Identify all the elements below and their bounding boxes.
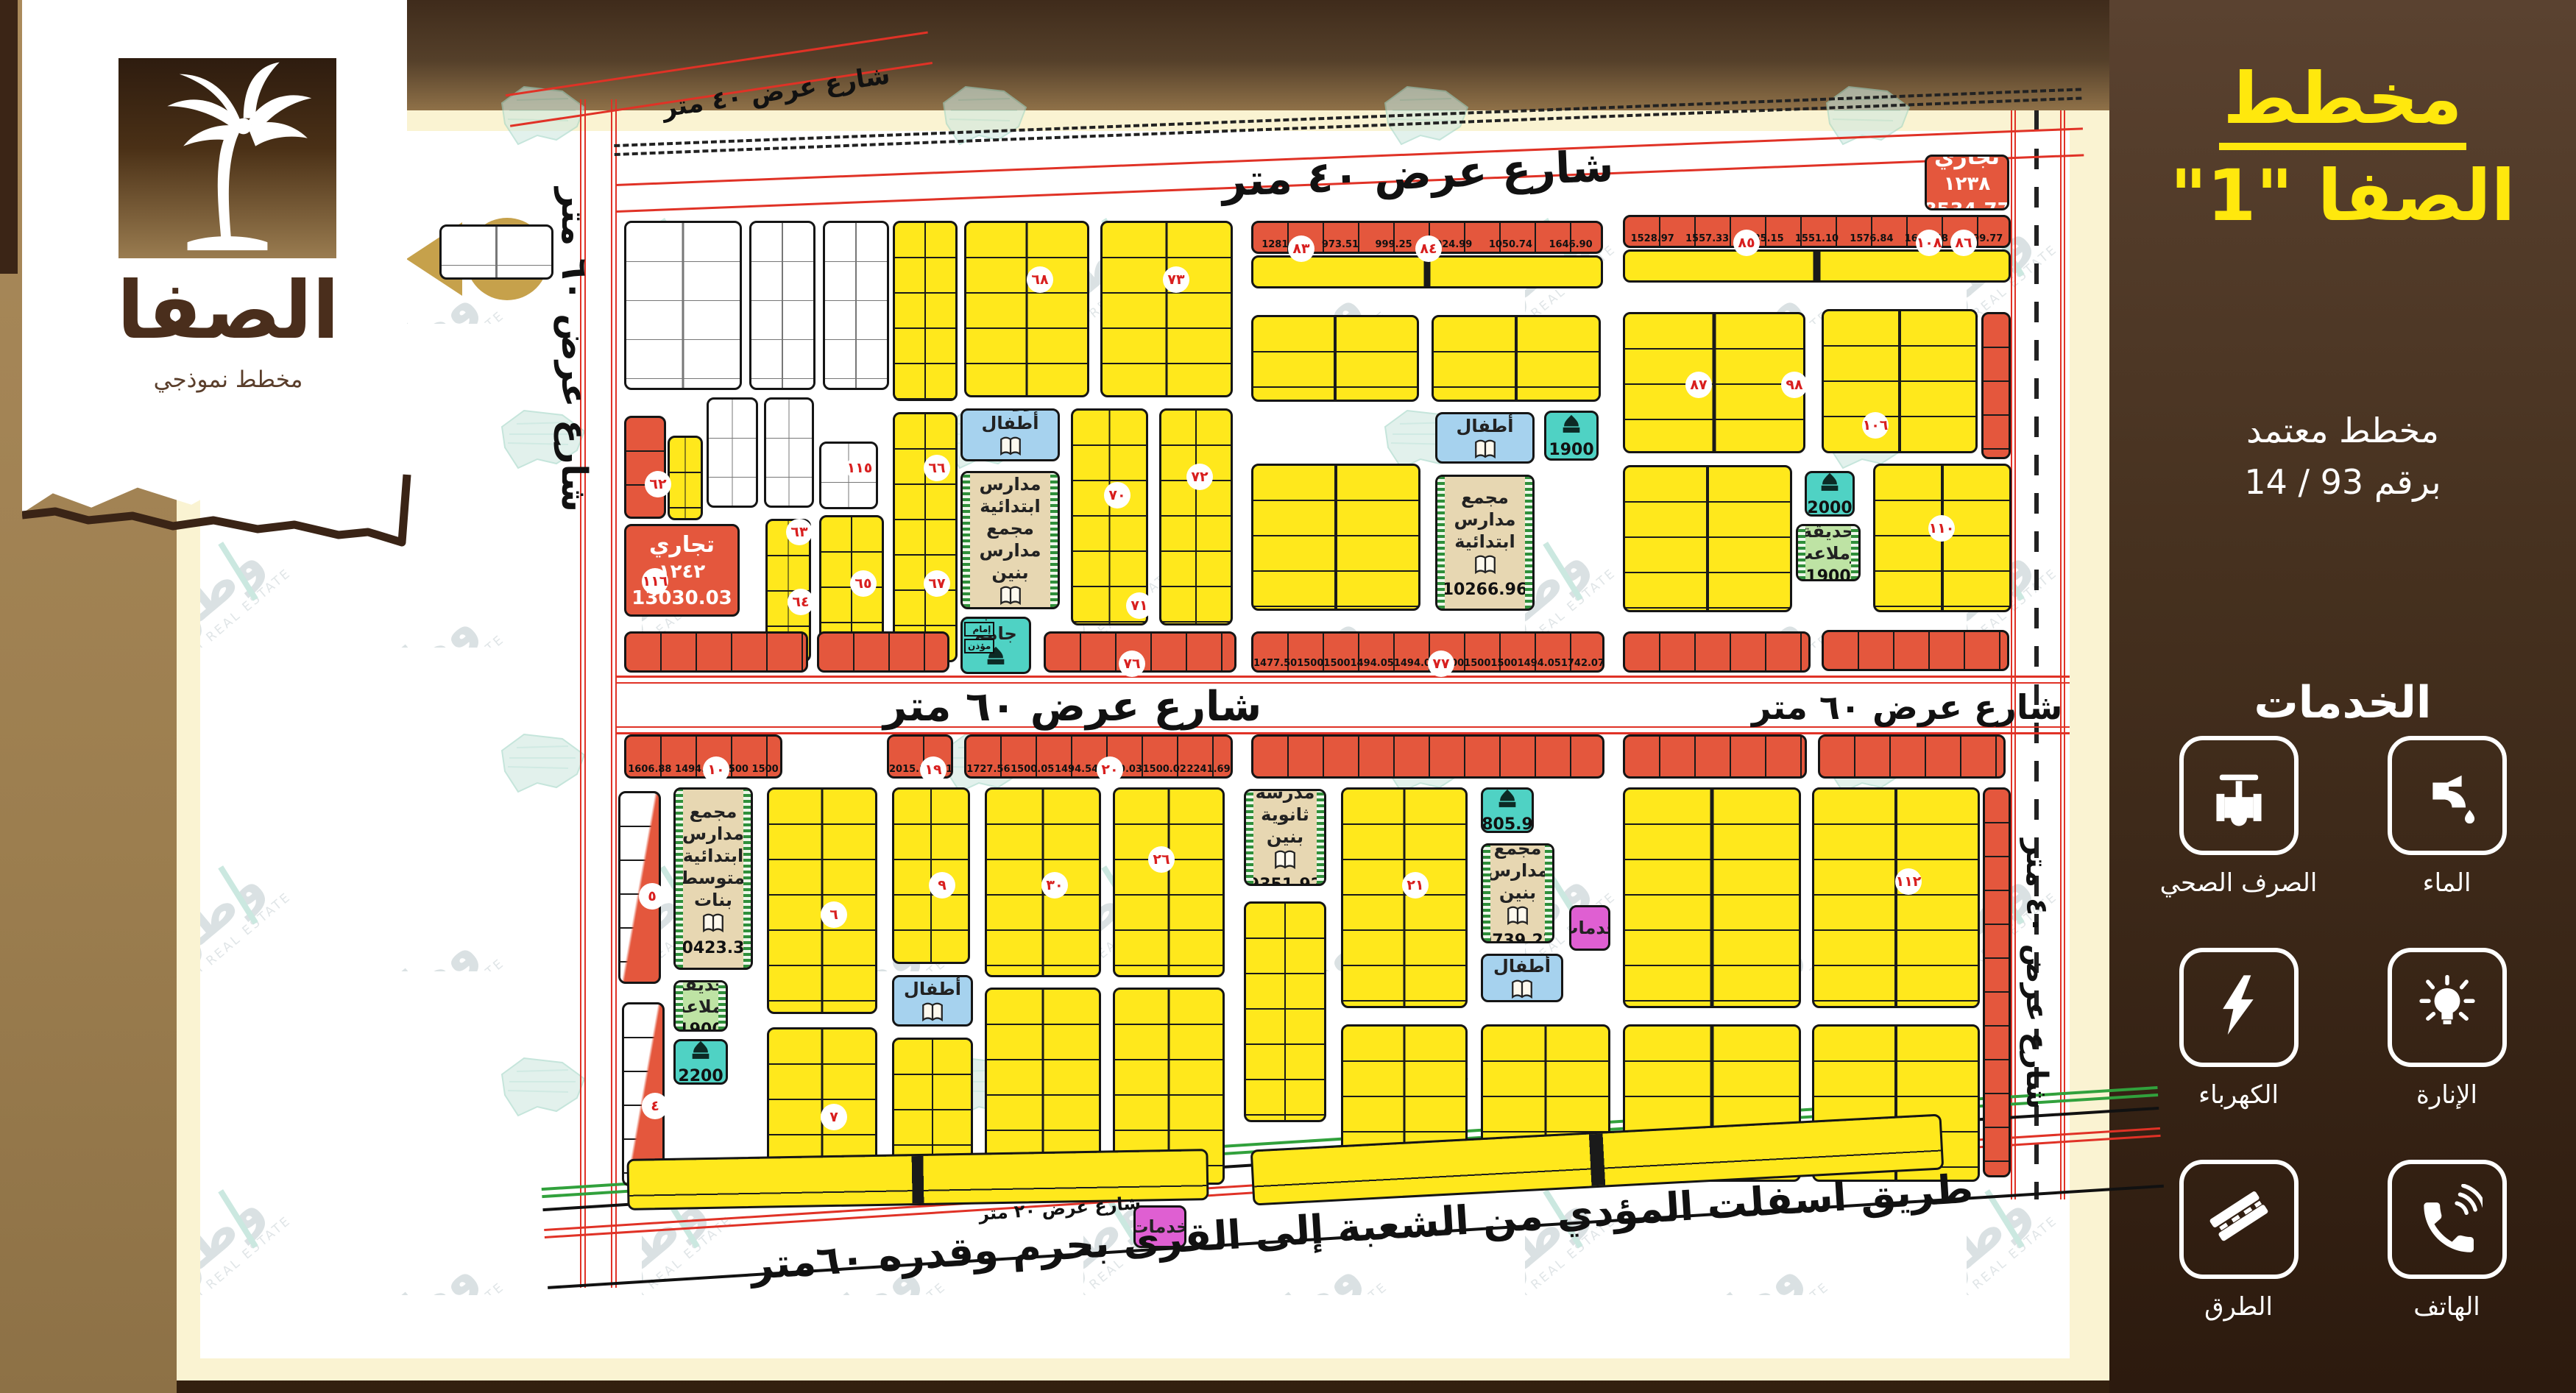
services-plot: خدمات bbox=[1569, 905, 1610, 951]
service-label: الطرق bbox=[2204, 1292, 2273, 1322]
school-plot: مجمع مدارسابتدائيةومتوسطة بنات10423.36 bbox=[673, 787, 753, 970]
green-hatch bbox=[1851, 526, 1858, 579]
plot-area: 9351.92 bbox=[1248, 876, 1322, 887]
service-label: الهاتف bbox=[2413, 1292, 2480, 1322]
plot-block bbox=[624, 221, 742, 390]
block-number-badge: ٦٦ bbox=[924, 455, 950, 481]
block-number-badge: ٧٧ bbox=[1428, 651, 1454, 677]
plot-block bbox=[1623, 734, 1807, 779]
road-icon bbox=[2204, 1184, 2274, 1255]
block-number-badge: ٦ bbox=[821, 901, 847, 928]
street-label: شارع عرض ٦٠ متر bbox=[1752, 687, 2062, 727]
block-number-badge: ١١٢ bbox=[1895, 868, 1922, 895]
book-icon bbox=[1505, 904, 1530, 929]
plot-area: 1900 bbox=[678, 1021, 723, 1032]
mosque-plot: 1900 bbox=[1544, 411, 1599, 461]
mosque-plot: 1805.94 bbox=[1481, 787, 1534, 833]
mosque-plot: مسجد جامع5830.01إماممؤذن bbox=[960, 617, 1031, 674]
plot-block bbox=[1251, 734, 1604, 779]
block-number-badge: ٨٤ bbox=[1415, 235, 1442, 262]
service-label: الإنارة bbox=[2416, 1080, 2477, 1110]
green-hatch bbox=[1545, 846, 1552, 941]
block-number-badge: ٧٣ bbox=[1163, 266, 1189, 293]
commercial-plot: تجاري١٢٣٨8534.77 bbox=[1925, 155, 2009, 210]
plan-title-line2: الصفا "1" bbox=[2127, 155, 2558, 237]
block-number-badge: ٣٠ bbox=[1041, 872, 1068, 898]
plot-area: 10266.96 bbox=[1443, 581, 1528, 599]
block-number-badge: ٧٠ bbox=[1104, 482, 1130, 508]
school-plot: مجمع مدارسبنين9739.27 bbox=[1481, 843, 1554, 943]
book-icon bbox=[1510, 977, 1535, 1002]
palm-logo bbox=[118, 58, 336, 258]
plot-block bbox=[1623, 465, 1792, 612]
commercial-plot: تجاري١٢٤٢13030.03 bbox=[624, 524, 740, 617]
plot-block bbox=[964, 221, 1089, 397]
plot-block bbox=[1981, 312, 2011, 459]
block-number-badge: ٧ bbox=[821, 1104, 847, 1130]
plot-area: 8534.77 bbox=[1925, 199, 2009, 210]
plot-block bbox=[1822, 630, 2009, 671]
mosque-icon bbox=[1495, 787, 1520, 812]
mosque-icon bbox=[688, 1039, 713, 1064]
plot-label: روضة أطفال bbox=[1483, 954, 1561, 977]
service-tile bbox=[2179, 1160, 2299, 1279]
green-hatch bbox=[1437, 477, 1445, 609]
plot-label: روضة أطفال bbox=[1437, 412, 1532, 437]
plot-area: 1900 bbox=[1805, 567, 1850, 582]
plot-block bbox=[1623, 631, 1811, 673]
plot-label: روضة أطفال bbox=[894, 975, 971, 1000]
green-hatch bbox=[743, 790, 751, 968]
services-grid: الماءالصرف الصحيالإنارةالكهرباءالهاتفالط… bbox=[2156, 736, 2529, 1322]
green-hatch bbox=[1798, 526, 1805, 579]
service-item: الإنارة bbox=[2388, 948, 2507, 1110]
plot-block bbox=[764, 397, 814, 508]
plot-area: 1805.94 bbox=[1481, 815, 1534, 834]
plot-label: مدرسة ثانويةبنين bbox=[1246, 789, 1324, 848]
plot-area: 10423.36 bbox=[673, 939, 753, 957]
kindergarten-plot: روضة أطفال5098.18 bbox=[1481, 954, 1563, 1002]
plot-block bbox=[892, 787, 970, 964]
green-hatch bbox=[963, 473, 970, 607]
service-tile bbox=[2179, 948, 2299, 1067]
block-number-badge: ٦٤ bbox=[788, 589, 814, 615]
book-icon bbox=[1473, 553, 1498, 578]
service-tile bbox=[2179, 736, 2299, 855]
plot-block bbox=[1623, 787, 1801, 1008]
plot-block bbox=[1159, 408, 1233, 625]
book-icon bbox=[998, 584, 1023, 609]
plot-block bbox=[1822, 309, 1978, 453]
plot-area: 5830.01 bbox=[960, 673, 1031, 675]
plot-block bbox=[624, 631, 808, 673]
block-number-badge: ٨٣ bbox=[1288, 235, 1314, 262]
block-number-badge: ١١٦ bbox=[642, 568, 668, 595]
plot-block bbox=[707, 397, 758, 508]
book-icon bbox=[1273, 848, 1298, 873]
plot-area: 1900 bbox=[1549, 441, 1593, 459]
book-icon bbox=[701, 911, 726, 936]
plot-block bbox=[1812, 787, 1980, 1008]
plot-label: خدمات bbox=[1569, 917, 1610, 939]
street-label: شارع عرض ٦٠ متر bbox=[883, 683, 1262, 731]
mosque-icon bbox=[1817, 471, 1842, 496]
block-number-badge: ١١٠ bbox=[1928, 515, 1955, 542]
block-number-badge: ٩ bbox=[929, 872, 955, 898]
plot-label: مجمع مدارسابتدائية bbox=[1437, 486, 1532, 553]
park-plot: حديقةوملاعب1900 bbox=[1796, 524, 1861, 581]
plot-block bbox=[749, 221, 815, 390]
block-number-badge: ٤ bbox=[642, 1093, 668, 1119]
book-icon bbox=[998, 434, 1023, 459]
school-plot: مجمع مدارسابتدائيةمجمع مدارسبنين9845.37 bbox=[960, 471, 1060, 609]
service-label: الماء bbox=[2423, 868, 2471, 898]
block-number-badge: ٧٦ bbox=[1119, 651, 1145, 677]
service-tile bbox=[2388, 736, 2507, 855]
valve-icon bbox=[2204, 760, 2274, 831]
plot-block bbox=[1983, 787, 2011, 1177]
book-icon bbox=[920, 1000, 945, 1025]
mosque-cells: إماممؤذن bbox=[964, 622, 994, 653]
block-number-badge: ٦٥ bbox=[850, 570, 877, 597]
mosque-plot: 2200 bbox=[673, 1039, 728, 1085]
plot-block bbox=[1251, 315, 1419, 402]
plot-number: ١٢٣٨ bbox=[1944, 173, 1990, 195]
block-number-badge: ١٠٨ bbox=[1916, 230, 1942, 256]
book-icon bbox=[1473, 437, 1498, 462]
green-hatch bbox=[1050, 473, 1058, 607]
plot-area: 2000 bbox=[1807, 499, 1852, 517]
plot-block bbox=[1113, 787, 1225, 977]
block-number-badge: ٨٥ bbox=[1733, 230, 1760, 256]
plot-block bbox=[893, 221, 958, 401]
green-hatch bbox=[1246, 791, 1253, 884]
kindergarten-plot: روضة أطفال4862.10 bbox=[1435, 412, 1535, 464]
plot-block bbox=[1623, 312, 1805, 453]
block-number-badge: ١٩ bbox=[920, 756, 946, 783]
plot-label: تجاري bbox=[1934, 155, 2000, 171]
plot-area: 9739.27 bbox=[1481, 932, 1554, 944]
green-hatch bbox=[676, 982, 683, 1029]
services-title: الخدمات bbox=[2127, 677, 2558, 729]
block-number-badge: ١٠ bbox=[703, 756, 729, 783]
block-number-badge: ٢١ bbox=[1402, 872, 1429, 898]
plot-block bbox=[1818, 734, 2006, 779]
plot-block bbox=[823, 221, 889, 390]
block-number-badge: ٩٨ bbox=[1781, 372, 1808, 398]
faucet-icon bbox=[2412, 760, 2483, 831]
block-number-badge: ٧١ bbox=[1126, 592, 1153, 619]
street-label: شارع عرض ٦٠ متر bbox=[553, 188, 595, 512]
approved-text: مخطط معتمد bbox=[2127, 411, 2558, 450]
plot-block bbox=[893, 412, 958, 662]
block-number-badge: ٧٢ bbox=[1186, 464, 1213, 490]
block-number-badge: ٦٢ bbox=[645, 471, 671, 497]
kindergarten-plot: روضة أطفال4654.45 bbox=[892, 975, 973, 1027]
plot-block bbox=[624, 416, 666, 519]
plot-block bbox=[668, 436, 703, 520]
service-item: الصرف الصحي bbox=[2160, 736, 2318, 898]
plot-block bbox=[817, 631, 949, 673]
school-plot: مجمع مدارسابتدائية10266.96 bbox=[1435, 475, 1535, 611]
logo-name: الصفا bbox=[66, 265, 390, 357]
block-number-badge: ٦٣ bbox=[786, 519, 813, 545]
plot-block bbox=[1251, 464, 1420, 611]
service-item: الهاتف bbox=[2388, 1160, 2507, 1322]
corner-sliver bbox=[0, 0, 18, 274]
service-tile bbox=[2388, 1160, 2507, 1279]
mosque-plot: 2000 bbox=[1805, 471, 1855, 517]
plot-area: 2200 bbox=[678, 1067, 723, 1085]
plot-block bbox=[1623, 249, 2011, 283]
plot-block bbox=[1100, 221, 1233, 397]
plan-title-line1: مخطط bbox=[2127, 57, 2558, 140]
block-number-badge: ٨٦ bbox=[1950, 230, 1977, 256]
green-hatch bbox=[718, 982, 726, 1029]
kindergarten-plot: روضة أطفال3758.76 bbox=[960, 408, 1060, 461]
plot-block bbox=[767, 787, 877, 1014]
palm-tree-icon bbox=[118, 58, 336, 258]
service-label: الكهرباء bbox=[2198, 1080, 2279, 1110]
green-hatch bbox=[1483, 846, 1490, 941]
plot-label: مجمع مدارسبنين bbox=[1483, 843, 1552, 904]
bulb-icon bbox=[2412, 972, 2483, 1043]
plot-label: مجمع مدارسابتدائيةمجمع مدارسبنين bbox=[963, 471, 1058, 584]
street-label: شارع عرض ٤٠ متر bbox=[2020, 839, 2053, 1109]
service-item: الماء bbox=[2388, 736, 2507, 898]
block-number-badge: ٢٠ bbox=[1097, 756, 1123, 783]
plot-label: تجاري bbox=[649, 531, 715, 559]
block-number-badge: ٢٦ bbox=[1148, 846, 1175, 873]
block-number-badge: ٨٧ bbox=[1685, 372, 1712, 398]
block-number-badge: ٦٧ bbox=[924, 570, 950, 597]
service-item: الكهرباء bbox=[2179, 948, 2299, 1110]
cream-frame-bottom bbox=[177, 1358, 2109, 1380]
bolt-icon bbox=[2204, 972, 2274, 1043]
plot-label: روضة أطفال bbox=[963, 408, 1058, 434]
mosque-icon bbox=[1559, 413, 1584, 438]
park-plot: حديقةوملاعب1900 bbox=[673, 980, 728, 1032]
green-hatch bbox=[1317, 791, 1324, 884]
logo-tagline: مخطط نموذجي bbox=[66, 366, 390, 393]
plot-block bbox=[1341, 787, 1468, 1008]
plot-block bbox=[1244, 901, 1326, 1122]
service-item: الطرق bbox=[2179, 1160, 2299, 1322]
poster: وطن للعقار WATAN REAL ESTATE وطن للعقار … bbox=[0, 0, 2576, 1393]
plot-block bbox=[439, 224, 553, 280]
block-number-badge: ٥ bbox=[639, 883, 665, 910]
phone-icon bbox=[2412, 1184, 2483, 1255]
plot-label: مجمع مدارسابتدائيةومتوسطة بنات bbox=[673, 801, 753, 911]
school-plot: مدرسة ثانويةبنين9351.92 bbox=[1244, 789, 1326, 886]
approved-number: برقم 93 / 14 bbox=[2127, 462, 2558, 502]
service-tile bbox=[2388, 948, 2507, 1067]
block-number-badge: ١١٥ bbox=[846, 455, 873, 481]
block-number-badge: ٦٨ bbox=[1027, 266, 1053, 293]
block-number-badge: ١٠٦ bbox=[1862, 412, 1889, 439]
green-hatch bbox=[676, 790, 683, 968]
service-label: الصرف الصحي bbox=[2160, 868, 2318, 898]
green-hatch bbox=[1525, 477, 1532, 609]
plot-block bbox=[1432, 315, 1601, 402]
